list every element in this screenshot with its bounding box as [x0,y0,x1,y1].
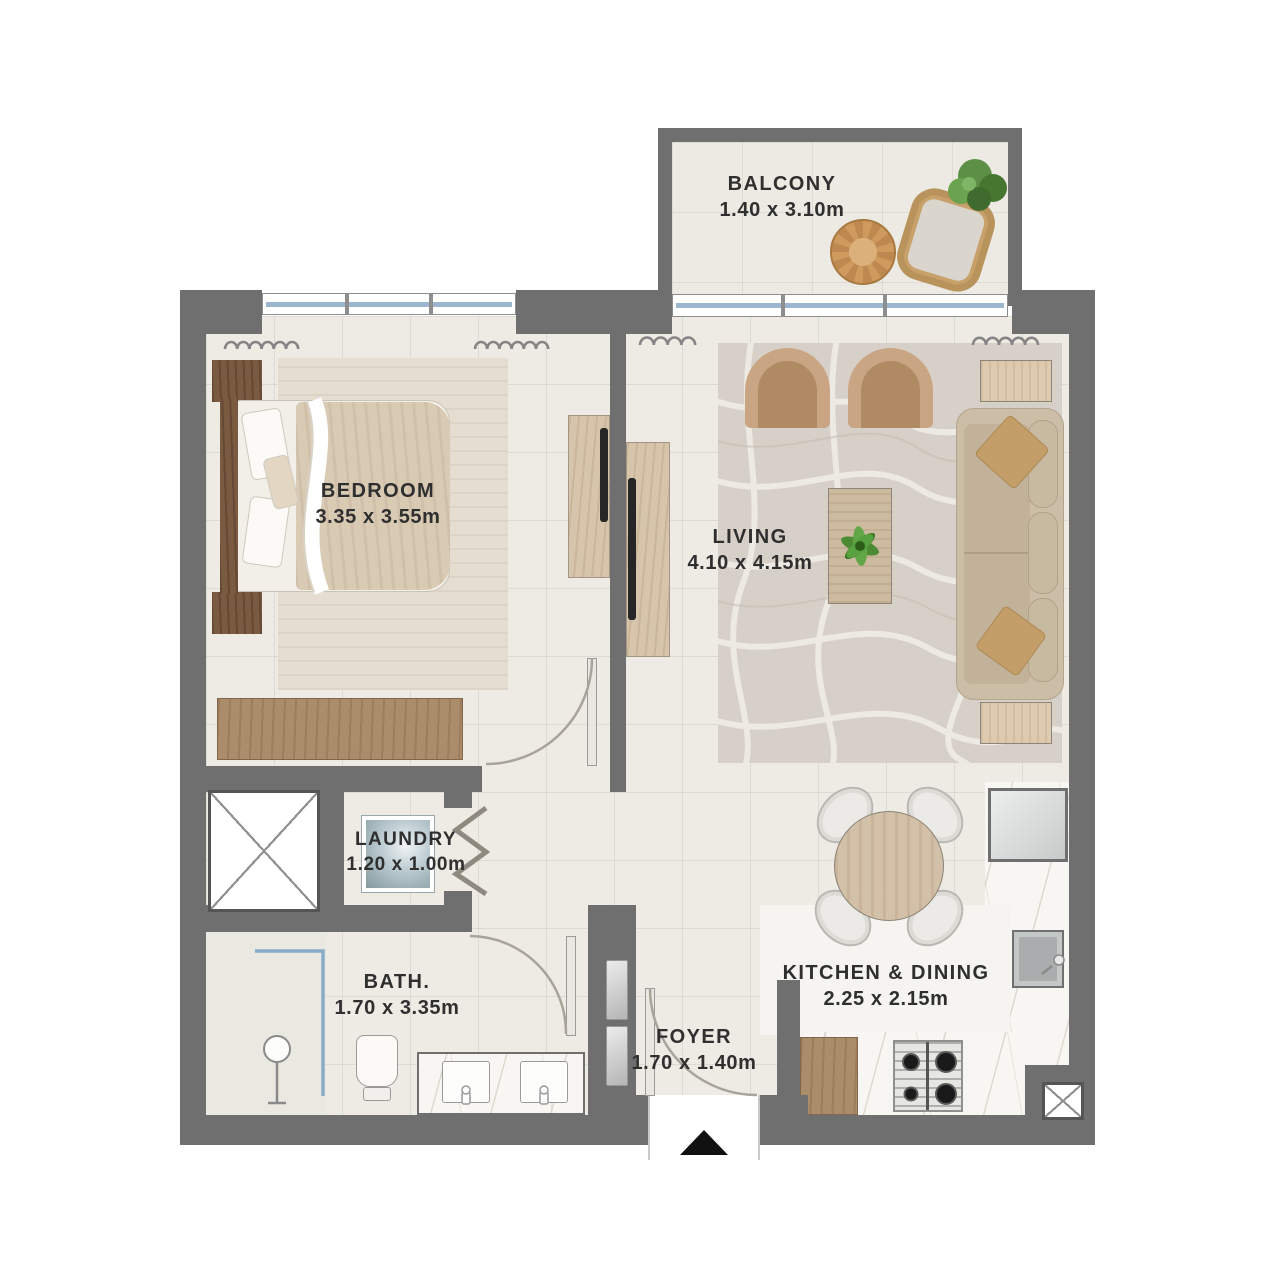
side-table-top [980,360,1052,402]
kitchen-sink [1012,930,1064,988]
bedroom-bottom-wall [206,766,482,792]
window-glass [266,302,512,307]
coffee-table [828,488,892,604]
wall-top-pier-2 [516,290,672,334]
balcony-wall-right [1008,128,1022,306]
wall-top-pier-3 [1012,290,1095,334]
room-name: FOYER [631,1024,756,1050]
window-glass [676,303,1004,308]
wall-right [1069,290,1095,1145]
living-tv [628,478,636,620]
bath-sink-2 [520,1061,568,1103]
shower-floor [206,932,326,1115]
accent-chair-seat [758,361,817,428]
lounge-chair-cushion [905,196,987,284]
room-dims: 1.40 x 3.10m [719,197,844,223]
bedroom-window [262,293,516,315]
room-dims: 1.20 x 1.00m [346,852,465,877]
room-name: BEDROOM [315,478,440,504]
bedroom-living-divider [610,316,626,792]
room-label-bath: BATH. 1.70 x 3.35m [334,969,459,1021]
bedroom-door [587,658,597,766]
room-label-laundry: LAUNDRY 1.20 x 1.00m [346,827,465,877]
wardrobe [217,698,463,760]
entry-arrow [680,1130,728,1155]
balcony-round-rug [830,219,896,285]
room-name: LIVING [687,524,812,550]
duct-shaft-small [1042,1082,1084,1120]
room-label-foyer: FOYER 1.70 x 1.40m [631,1024,756,1076]
closet-panel-1 [606,960,628,1020]
service-shaft [208,790,320,912]
sofa-seat-divider [964,552,1030,554]
room-label-kitchen: KITCHEN & DINING 2.25 x 2.15m [783,960,990,1012]
kitchen-cabinet [800,1037,858,1115]
toilet-base [363,1087,391,1101]
dining-table [834,811,944,921]
accent-chair-2 [848,348,933,428]
accent-chair-seat [861,361,920,428]
balcony-wall-top [658,128,1022,142]
toilet [356,1035,398,1087]
room-dims: 3.35 x 3.55m [315,504,440,530]
wall-bottom-left [180,1115,648,1145]
shaft-side-wall [320,790,344,912]
room-dims: 2.25 x 2.15m [783,986,990,1012]
side-table-bottom [980,702,1052,744]
headboard [220,398,238,594]
window-mullion [781,295,785,316]
room-label-balcony: BALCONY 1.40 x 3.10m [719,171,844,223]
laundry-stub-top [444,766,472,808]
room-dims: 4.10 x 4.15m [687,550,812,576]
foyer-closet-wall [588,905,636,1145]
window-mullion [345,294,349,314]
bath-door [566,936,576,1036]
wall-top-pier-1 [180,290,262,334]
room-dims: 1.70 x 1.40m [631,1050,756,1076]
balcony-slider-window [672,294,1008,317]
wall-left [180,290,206,1145]
closet-panel-2 [606,1026,628,1086]
balcony-wall-left [658,128,672,306]
room-dims: 1.70 x 3.35m [334,995,459,1021]
accent-chair-1 [745,348,830,428]
room-label-living: LIVING 4.10 x 4.15m [687,524,812,576]
fridge [988,788,1068,862]
nightstand-bottom [212,592,262,634]
sofa-back-cushion-2 [1028,512,1058,594]
window-mullion [429,294,433,314]
room-name: BALCONY [719,171,844,197]
cooktop-divider [926,1042,929,1110]
window-mullion [883,295,887,316]
room-name: KITCHEN & DINING [783,960,990,986]
floor-plan: BALCONY 1.40 x 3.10m BEDROOM 3.35 x 3.55… [0,0,1280,1280]
room-name: BATH. [334,969,459,995]
bath-sink-1 [442,1061,490,1103]
room-label-bedroom: BEDROOM 3.35 x 3.55m [315,478,440,530]
bedroom-tv [600,428,608,522]
nightstand-top [212,360,262,402]
room-name: LAUNDRY [346,827,465,852]
